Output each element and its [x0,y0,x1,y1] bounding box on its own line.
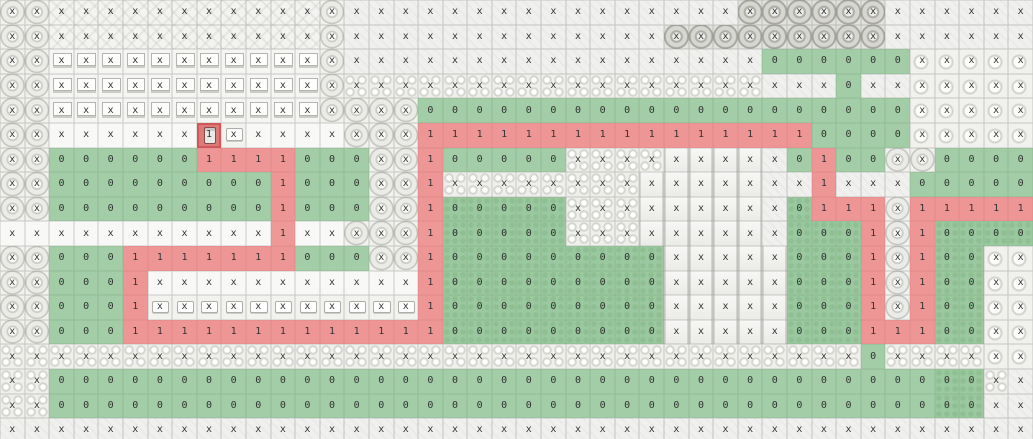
map-cell-floor[interactable]: x [123,123,148,148]
map-cell-grass[interactable]: 0 [836,98,861,123]
map-cell-roof[interactable]: x [197,25,222,50]
map-cell-floor[interactable]: 1 [418,221,443,246]
map-cell-hedge[interactable]: x [566,148,591,173]
map-cell-ground[interactable]: x [639,49,664,74]
map-cell-ground[interactable]: x [861,172,886,197]
map-cell-roof[interactable]: x [295,0,320,25]
map-cell-hedge[interactable]: x [492,74,517,99]
map-cell-hedge[interactable]: x [639,74,664,99]
map-cell-cliff[interactable]: x [1008,98,1033,123]
map-cell-tall-grass[interactable]: 0 [959,221,984,246]
map-cell-tall-grass[interactable]: 0 [492,271,517,296]
map-cell-ground[interactable]: x [467,25,492,50]
map-cell-tree[interactable]: x [394,221,419,246]
map-cell-hedge[interactable]: x [516,74,541,99]
map-cell-tall-grass[interactable]: 0 [812,271,837,296]
map-cell-grass[interactable]: 0 [295,369,320,394]
map-cell-building[interactable]: x [738,221,763,246]
map-cell-grass[interactable]: 0 [148,369,173,394]
map-cell-ground[interactable]: x [935,25,960,50]
map-cell-hedge[interactable]: x [369,74,394,99]
map-cell-ground[interactable]: x [984,394,1009,419]
map-cell-tall-grass[interactable]: 0 [492,221,517,246]
map-cell-item-box[interactable]: x [369,295,394,320]
map-cell-floor[interactable]: x [172,123,197,148]
map-cell-grass[interactable]: 0 [197,197,222,222]
map-cell-grass[interactable]: 1 [885,320,910,345]
map-cell-grass[interactable]: 0 [566,394,591,419]
map-cell-dark-tree[interactable]: x [787,25,812,50]
map-cell-hedge[interactable]: x [566,172,591,197]
map-cell-grass[interactable]: 0 [344,394,369,419]
map-cell-grass[interactable]: 0 [172,394,197,419]
map-cell-floor[interactable]: x [271,123,296,148]
map-cell-ground[interactable]: x [812,74,837,99]
map-cell-tree[interactable]: x [0,271,25,296]
map-cell-tree[interactable]: x [25,98,50,123]
map-cell-tree[interactable]: x [369,197,394,222]
map-cell-grass[interactable]: 0 [664,394,689,419]
map-cell-grass[interactable]: 1 [246,320,271,345]
map-cell-ground[interactable]: x [910,0,935,25]
map-cell-grass[interactable]: 0 [123,369,148,394]
map-cell-tall-grass[interactable]: 0 [467,221,492,246]
map-cell-floor[interactable]: x [295,221,320,246]
map-cell-hedge[interactable]: x [443,344,468,369]
map-cell-grass[interactable]: 0 [812,49,837,74]
map-cell-grass[interactable]: 0 [443,369,468,394]
map-cell-tall-grass[interactable]: 0 [541,271,566,296]
map-cell-grass[interactable]: 0 [836,369,861,394]
map-cell-grass[interactable]: 1 [123,246,148,271]
map-cell-building[interactable]: x [639,172,664,197]
map-cell-tree[interactable]: x [25,74,50,99]
map-cell-hedge[interactable]: x [0,344,25,369]
map-cell-grass[interactable]: 0 [98,197,123,222]
map-cell-grass[interactable]: 0 [123,394,148,419]
map-cell-building[interactable]: x [689,148,714,173]
map-cell-ground[interactable]: x [885,74,910,99]
map-cell-grass[interactable]: 0 [590,369,615,394]
map-cell-dark-tree[interactable]: x [787,0,812,25]
map-cell-grass[interactable]: 0 [271,394,296,419]
map-cell-hedge[interactable]: x [172,344,197,369]
map-cell-grass[interactable]: 1 [713,123,738,148]
map-cell-ground[interactable]: x [320,418,345,439]
map-cell-roof[interactable]: x [172,0,197,25]
map-cell-floor[interactable]: x [197,221,222,246]
map-cell-tall-grass[interactable]: 0 [467,320,492,345]
map-cell-tall-grass[interactable]: 0 [836,221,861,246]
map-cell-grass[interactable]: 1 [123,295,148,320]
map-cell-tall-grass[interactable]: 0 [492,197,517,222]
map-cell-tall-grass[interactable]: 0 [812,295,837,320]
map-cell-building[interactable]: x [664,320,689,345]
map-cell-building[interactable]: x [762,271,787,296]
map-cell-tree[interactable]: x [369,98,394,123]
map-cell-roof[interactable]: x [295,25,320,50]
map-cell-hedge[interactable]: x [566,344,591,369]
map-cell-grass[interactable]: 0 [123,197,148,222]
map-cell-ground[interactable]: x [541,25,566,50]
map-cell-grass[interactable]: 0 [74,172,99,197]
map-cell-ground[interactable]: x [516,49,541,74]
map-cell-dark-tree[interactable]: x [762,0,787,25]
map-cell-tall-grass[interactable]: 0 [443,246,468,271]
map-cell-hedge[interactable]: x [541,172,566,197]
map-cell-roof[interactable]: x [49,0,74,25]
map-cell-ground[interactable]: x [1008,418,1033,439]
map-cell-grass[interactable]: 0 [713,394,738,419]
map-cell-tall-grass[interactable]: 0 [516,320,541,345]
map-cell-hedge[interactable]: x [49,344,74,369]
map-cell-grass[interactable]: 1 [271,320,296,345]
map-cell-ground[interactable]: x [492,418,517,439]
map-cell-grass[interactable]: 0 [516,98,541,123]
map-cell-hedge[interactable]: x [0,394,25,419]
map-cell-item-box[interactable]: x [246,295,271,320]
map-cell-hedge[interactable]: x [516,172,541,197]
map-cell-grass[interactable]: 0 [74,369,99,394]
map-cell-tall-grass[interactable]: 0 [492,320,517,345]
map-cell-grass[interactable]: 0 [861,344,886,369]
map-cell-grass[interactable]: 0 [984,172,1009,197]
map-cell-cliff[interactable]: x [910,74,935,99]
map-cell-grass[interactable]: 1 [418,320,443,345]
map-cell-ground[interactable]: x [246,418,271,439]
map-cell-roof[interactable]: x [98,25,123,50]
map-cell-floor[interactable]: x [98,221,123,246]
map-cell-grass[interactable]: 0 [615,98,640,123]
map-cell-ground[interactable]: x [984,0,1009,25]
map-cell-ground[interactable]: x [443,418,468,439]
map-cell-ground[interactable]: x [885,418,910,439]
map-cell-ground[interactable]: x [418,49,443,74]
map-cell-grass[interactable]: 1 [861,271,886,296]
map-cell-desk[interactable]: x [221,74,246,99]
map-cell-grass[interactable]: 1 [812,172,837,197]
map-cell-floor[interactable]: x [221,271,246,296]
map-cell-tall-grass[interactable]: 0 [639,246,664,271]
map-cell-tall-grass[interactable]: 0 [566,320,591,345]
map-cell-tree[interactable]: x [344,221,369,246]
map-cell-grass[interactable]: 0 [713,369,738,394]
map-cell-hedge[interactable]: x [443,74,468,99]
map-cell-tall-grass[interactable]: 0 [566,295,591,320]
map-cell-cliff[interactable]: x [959,74,984,99]
map-cell-ground[interactable]: x [959,418,984,439]
map-cell-grass[interactable]: 0 [541,148,566,173]
map-cell-floor[interactable]: x [320,271,345,296]
map-cell-ground[interactable]: x [566,25,591,50]
map-cell-ground[interactable]: x [639,25,664,50]
map-cell-ground[interactable]: x [738,49,763,74]
map-cell-ground[interactable]: x [984,25,1009,50]
map-cell-tall-grass[interactable]: 0 [492,246,517,271]
map-cell-grass[interactable]: 0 [172,369,197,394]
map-cell-tall-grass[interactable]: 0 [516,197,541,222]
map-cell-cliff[interactable]: x [984,320,1009,345]
map-cell-grass[interactable]: 1 [467,123,492,148]
map-cell-ground[interactable]: x [541,49,566,74]
map-cell-ground[interactable]: x [566,49,591,74]
map-cell-grass[interactable]: 0 [172,172,197,197]
map-cell-ground[interactable]: x [394,25,419,50]
map-cell-grass[interactable]: 0 [344,148,369,173]
map-cell-building[interactable]: x [738,246,763,271]
map-cell-grass[interactable]: 1 [836,197,861,222]
map-cell-grass[interactable]: 0 [910,172,935,197]
map-cell-tall-grass[interactable]: 0 [812,221,837,246]
map-cell-ground[interactable]: x [418,418,443,439]
map-cell-ground[interactable]: x [713,418,738,439]
map-cell-grass[interactable]: 0 [271,369,296,394]
map-cell-hedge[interactable]: x [271,344,296,369]
map-cell-tall-grass[interactable]: 0 [615,320,640,345]
map-cell-tall-grass[interactable]: 0 [467,197,492,222]
map-cell-floor[interactable]: 1 [271,221,296,246]
map-cell-grass[interactable]: 0 [566,98,591,123]
map-cell-ground[interactable]: x [885,172,910,197]
map-cell-item-box[interactable]: x [295,295,320,320]
map-cell-hedge[interactable]: x [910,344,935,369]
map-cell-cliff[interactable]: x [1008,74,1033,99]
map-cell-tall-grass[interactable]: 0 [541,197,566,222]
map-cell-grass[interactable]: 1 [443,123,468,148]
map-cell-grass[interactable]: 0 [738,394,763,419]
map-cell-tall-grass[interactable]: 0 [467,295,492,320]
map-cell-grass[interactable]: 1 [197,148,222,173]
map-cell-ground[interactable]: x [615,49,640,74]
map-cell-hedge[interactable]: x [246,344,271,369]
map-cell-tall-grass[interactable]: 0 [443,320,468,345]
map-cell-hedge[interactable]: x [148,344,173,369]
map-cell-building[interactable]: x [713,148,738,173]
map-cell-grass[interactable]: 0 [418,394,443,419]
map-cell-grass[interactable]: 1 [910,271,935,296]
map-cell-cliff[interactable]: x [1008,49,1033,74]
map-cell-roof[interactable]: x [271,25,296,50]
map-cell-roof[interactable]: x [148,0,173,25]
map-cell-item-box[interactable]: x [344,295,369,320]
map-cell-tall-grass[interactable]: 0 [541,295,566,320]
map-cell-tree[interactable]: x [25,49,50,74]
map-cell-grass[interactable]: 1 [639,123,664,148]
map-cell-roof[interactable]: x [221,25,246,50]
map-cell-grass[interactable]: 1 [246,148,271,173]
map-cell-tall-grass[interactable]: 0 [615,246,640,271]
map-cell-grass[interactable]: 0 [197,369,222,394]
map-cell-grass[interactable]: 0 [467,98,492,123]
map-cell-tree[interactable]: x [369,221,394,246]
map-cell-floor[interactable]: x [25,221,50,246]
map-cell-grass[interactable]: 0 [221,394,246,419]
map-cell-grass[interactable]: 0 [467,148,492,173]
map-cell-grass[interactable]: 0 [467,394,492,419]
map-cell-grass[interactable]: 1 [910,221,935,246]
map-cell-hedge[interactable]: x [615,344,640,369]
map-cell-grass[interactable]: 0 [541,369,566,394]
map-cell-tree[interactable]: x [369,123,394,148]
map-cell-grass[interactable]: 0 [689,98,714,123]
map-cell-tall-grass[interactable]: 0 [566,271,591,296]
map-cell-ground[interactable]: x [74,418,99,439]
map-cell-tall-grass[interactable]: 0 [541,320,566,345]
map-cell-desk[interactable]: x [197,98,222,123]
map-cell-grass[interactable]: 0 [98,369,123,394]
map-cell-tree[interactable]: x [25,246,50,271]
map-cell-tree[interactable]: x [0,49,25,74]
map-cell-ground[interactable]: x [221,418,246,439]
map-cell-floor[interactable]: x [197,271,222,296]
map-cell-floor[interactable]: x [246,221,271,246]
map-cell-ground[interactable]: x [418,25,443,50]
map-cell-grass[interactable]: 0 [762,49,787,74]
map-cell-grass[interactable]: 0 [74,246,99,271]
map-cell-desk[interactable]: x [123,98,148,123]
map-cell-cliff[interactable]: x [1008,344,1033,369]
map-cell-grass[interactable]: 0 [394,394,419,419]
map-cell-tall-grass[interactable]: 0 [516,271,541,296]
map-cell-grass[interactable]: 0 [443,394,468,419]
map-cell-tall-grass[interactable]: 0 [590,295,615,320]
map-cell-grass[interactable]: 0 [861,148,886,173]
map-cell-grass[interactable]: 0 [1008,148,1033,173]
map-cell-roof[interactable]: x [123,0,148,25]
map-cell-grass[interactable]: 0 [172,148,197,173]
map-cell-tall-grass[interactable]: 0 [1008,221,1033,246]
map-cell-grass[interactable]: 0 [516,369,541,394]
map-cell-ground[interactable]: x [762,172,787,197]
map-cell-hedge[interactable]: x [492,344,517,369]
map-cell-grass[interactable]: 0 [812,394,837,419]
map-cell-tall-grass[interactable]: 0 [787,197,812,222]
map-cell-grass[interactable]: 0 [615,369,640,394]
map-cell-hedge[interactable]: x [885,344,910,369]
map-cell-ground[interactable]: x [1008,369,1033,394]
map-cell-floor[interactable]: x [148,123,173,148]
map-cell-grass[interactable]: 0 [861,98,886,123]
map-cell-grass[interactable]: 1 [861,221,886,246]
map-cell-grass[interactable]: 1 [910,295,935,320]
map-cell-hedge[interactable]: x [467,172,492,197]
map-cell-tree[interactable]: x [25,320,50,345]
map-cell-building[interactable]: x [713,320,738,345]
map-cell-grass[interactable]: 0 [148,197,173,222]
map-cell-roof[interactable]: x [246,25,271,50]
map-cell-cliff[interactable]: x [984,344,1009,369]
map-cell-hedge[interactable]: x [394,74,419,99]
map-cell-ground[interactable]: x [344,418,369,439]
map-cell-ground[interactable]: x [271,418,296,439]
map-cell-grass[interactable]: 1 [516,123,541,148]
map-cell-floor[interactable]: x [369,271,394,296]
map-cell-item-box[interactable]: x [271,295,296,320]
map-cell-ground[interactable]: x [615,25,640,50]
map-cell-grass[interactable]: 0 [394,369,419,394]
map-cell-ground[interactable]: x [98,418,123,439]
map-cell-grass[interactable]: 0 [49,197,74,222]
map-cell-hedge[interactable]: x [713,74,738,99]
map-cell-tall-grass[interactable]: 0 [566,246,591,271]
map-cell-ground[interactable]: x [0,418,25,439]
map-cell-grass[interactable]: 1 [812,197,837,222]
map-cell-tree[interactable]: x [0,320,25,345]
map-cell-cliff[interactable]: x [910,123,935,148]
map-cell-hedge[interactable]: x [935,344,960,369]
map-cell-grass[interactable]: 1 [271,197,296,222]
map-cell-cliff[interactable]: x [984,246,1009,271]
map-cell-desk[interactable]: x [98,98,123,123]
map-cell-grass[interactable]: 1 [935,197,960,222]
map-cell-grass[interactable]: 0 [74,197,99,222]
map-cell-desk[interactable]: x [49,74,74,99]
map-cell-hedge[interactable]: x [738,344,763,369]
map-cell-grass[interactable]: 0 [836,49,861,74]
map-cell-ground[interactable]: x [467,49,492,74]
map-cell-grass[interactable]: 0 [49,320,74,345]
map-cell-cliff[interactable]: x [1008,271,1033,296]
map-cell-ground[interactable]: x [172,418,197,439]
map-cell-ground[interactable]: x [787,172,812,197]
map-cell-grass[interactable]: 0 [935,172,960,197]
map-cell-grass[interactable]: 0 [689,369,714,394]
map-cell-grass[interactable]: 1 [959,197,984,222]
map-cell-ground[interactable]: x [394,49,419,74]
map-cell-grass[interactable]: 0 [344,246,369,271]
map-cell-grass[interactable]: 0 [221,197,246,222]
map-cell-grass[interactable]: 1 [320,320,345,345]
map-cell-tall-grass[interactable]: 0 [959,369,984,394]
map-cell-grass[interactable]: 1 [148,320,173,345]
map-cell-grass[interactable]: 0 [443,148,468,173]
map-cell-grass[interactable]: 1 [738,123,763,148]
map-cell-ground[interactable]: x [836,418,861,439]
map-cell-hedge[interactable]: x [566,74,591,99]
map-cell-grass[interactable]: 1 [221,320,246,345]
map-cell-tall-grass[interactable]: 0 [467,271,492,296]
map-cell-building[interactable]: x [689,271,714,296]
map-cell-desk[interactable]: x [221,98,246,123]
map-cell-dark-tree[interactable]: x [738,0,763,25]
map-cell-ground[interactable]: x [541,418,566,439]
map-cell-tall-grass[interactable]: 0 [836,246,861,271]
map-cell-ground[interactable]: x [148,418,173,439]
map-cell-ground[interactable]: x [49,418,74,439]
map-cell-tall-grass[interactable]: 0 [787,320,812,345]
map-cell-grass[interactable]: 0 [98,148,123,173]
map-cell-grass[interactable]: 0 [369,369,394,394]
map-cell-ground[interactable]: x [25,418,50,439]
map-cell-hedge[interactable]: x [812,344,837,369]
map-cell-grass[interactable]: 1 [541,123,566,148]
map-cell-grass[interactable]: 0 [664,98,689,123]
map-cell-grass[interactable]: 1 [762,123,787,148]
map-cell-tall-grass[interactable]: 0 [615,271,640,296]
map-cell-hedge[interactable]: x [0,369,25,394]
map-cell-grass[interactable]: 0 [320,246,345,271]
map-cell-hedge[interactable]: x [394,344,419,369]
map-cell-dark-tree[interactable]: x [689,25,714,50]
map-cell-grass[interactable]: 0 [590,98,615,123]
map-cell-tall-grass[interactable]: 0 [984,221,1009,246]
map-cell-desk[interactable]: x [295,49,320,74]
map-cell-grass[interactable]: 1 [418,148,443,173]
map-cell-hedge[interactable]: x [713,344,738,369]
map-cell-cliff[interactable]: x [984,123,1009,148]
map-cell-hedge[interactable]: x [123,344,148,369]
map-cell-grass[interactable]: 0 [812,98,837,123]
